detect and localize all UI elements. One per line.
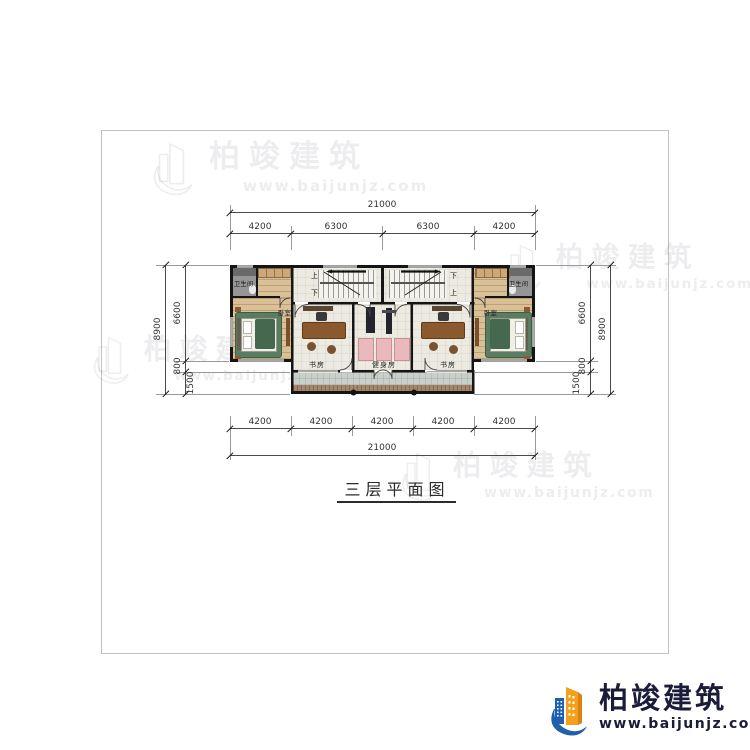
- watermark-url: www.baijunjz.com: [484, 484, 654, 501]
- watermark: 柏竣建筑 www.baijunjz.com: [145, 140, 428, 196]
- ext-line: [474, 226, 475, 250]
- dim-line: [230, 428, 535, 429]
- dim-line: [590, 265, 591, 394]
- room-label-bath-right: 卫生间: [509, 279, 529, 288]
- watermark-text: 柏竣建筑 www.baijunjz.com: [453, 450, 655, 501]
- room-label-bed-right: 卧室: [484, 307, 497, 317]
- dim-line: [230, 455, 535, 456]
- watermark-brand: 柏竣建筑: [209, 140, 428, 174]
- dim-label: 6600: [578, 302, 588, 325]
- room-label-gym: 健身房: [372, 360, 396, 370]
- dim-label: 8900: [598, 318, 608, 341]
- floor-plan: 卫生间 卫生间 卧室 卧室 书房 书房 健身房 上 下 下 上: [228, 262, 539, 398]
- ext-line: [536, 265, 616, 266]
- dim-label: 800: [173, 357, 183, 374]
- dim-label: 1500: [186, 372, 196, 395]
- dim-label: 6600: [173, 302, 183, 325]
- ext-line: [291, 226, 292, 250]
- stair-label-up: 上: [311, 271, 318, 281]
- room-label-bath-left: 卫生间: [234, 279, 254, 288]
- dim-line: [230, 212, 535, 213]
- brand-name: 柏竣建筑: [599, 682, 750, 715]
- room-label-bed-left: 卧室: [278, 307, 291, 317]
- dim-label: 4200: [371, 417, 394, 427]
- dim-line: [165, 265, 166, 394]
- dim-line: [610, 265, 611, 394]
- dim-label: 1500: [572, 372, 582, 395]
- dim-label: 4200: [493, 222, 516, 232]
- ext-line: [156, 394, 290, 395]
- dim-label: 6300: [417, 222, 440, 232]
- brand-logo: 柏竣建筑 www.baijunjz.com: [546, 682, 750, 738]
- brand-logo-text: 柏竣建筑 www.baijunjz.com: [599, 682, 750, 732]
- dim-label: 4200: [432, 417, 455, 427]
- dim-label: 6300: [325, 222, 348, 232]
- brand-logo-icon: [546, 682, 590, 738]
- ext-line: [156, 265, 229, 266]
- ext-line: [474, 394, 616, 395]
- dim-label: 8900: [153, 318, 163, 341]
- dim-label: 4200: [493, 417, 516, 427]
- room-label-study-right: 书房: [440, 360, 456, 370]
- brand-url: www.baijunjz.com: [599, 716, 750, 732]
- ext-line: [382, 226, 383, 250]
- stair-label-down: 下: [450, 271, 457, 281]
- watermark-text: 柏竣建筑 www.baijunjz.com: [556, 242, 750, 292]
- dim-label: 21000: [368, 200, 397, 210]
- dim-label: 21000: [368, 443, 397, 453]
- watermark-logo-icon: [145, 140, 199, 196]
- watermark-brand: 柏竣建筑: [556, 242, 750, 273]
- room-label-study-left: 书房: [309, 360, 325, 370]
- drawing-title-underline: [337, 501, 456, 503]
- dim-label: 4200: [249, 222, 272, 232]
- drawing-title: 三层平面图: [338, 476, 456, 500]
- plan-linework: [228, 262, 539, 398]
- dim-label: 4200: [310, 417, 333, 427]
- watermark-url: www.baijunjz.com: [243, 177, 428, 195]
- dim-label: 4200: [249, 417, 272, 427]
- stair-label-down: 下: [311, 288, 318, 298]
- watermark-logo-icon: [86, 334, 135, 384]
- stair-label-up: 上: [450, 288, 457, 298]
- page: 柏竣建筑 www.baijunjz.com 柏竣建筑 www.baijunjz.…: [0, 0, 750, 750]
- watermark-text: 柏竣建筑 www.baijunjz.com: [209, 140, 428, 195]
